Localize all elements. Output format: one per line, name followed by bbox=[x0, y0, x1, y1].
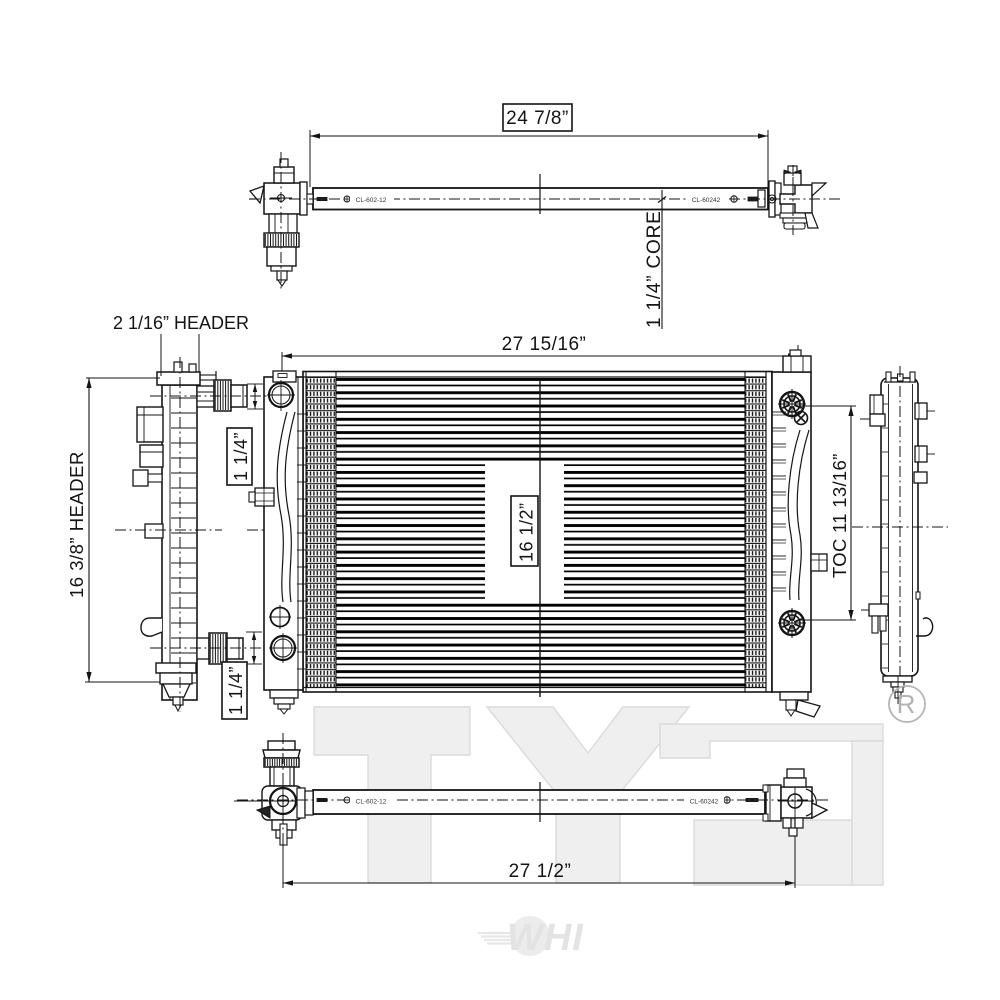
svg-text:CL-60242: CL-60242 bbox=[692, 197, 721, 204]
svg-text:TOC 11 13/16”: TOC 11 13/16” bbox=[829, 453, 850, 578]
svg-text:CL-60242: CL-60242 bbox=[690, 799, 719, 806]
svg-text:16 1/2”: 16 1/2” bbox=[517, 502, 537, 562]
svg-text:1 1/4”: 1 1/4” bbox=[231, 432, 251, 481]
svg-text:WHI: WHI bbox=[507, 917, 584, 959]
svg-text:27 15/16”: 27 15/16” bbox=[502, 334, 587, 355]
svg-text:2 1/16” HEADER: 2 1/16” HEADER bbox=[113, 313, 249, 333]
svg-text:24 7/8”: 24 7/8” bbox=[506, 108, 569, 129]
svg-text:1 1/4”: 1 1/4” bbox=[226, 666, 246, 715]
svg-text:CL-602-12: CL-602-12 bbox=[356, 197, 387, 204]
svg-text:16 3/8” HEADER: 16 3/8” HEADER bbox=[66, 451, 87, 598]
svg-text:27 1/2”: 27 1/2” bbox=[509, 861, 572, 882]
svg-text:CL-602-12: CL-602-12 bbox=[356, 799, 387, 806]
svg-text:R: R bbox=[897, 689, 916, 719]
svg-text:1 1/4” CORE: 1 1/4” CORE bbox=[644, 210, 665, 328]
